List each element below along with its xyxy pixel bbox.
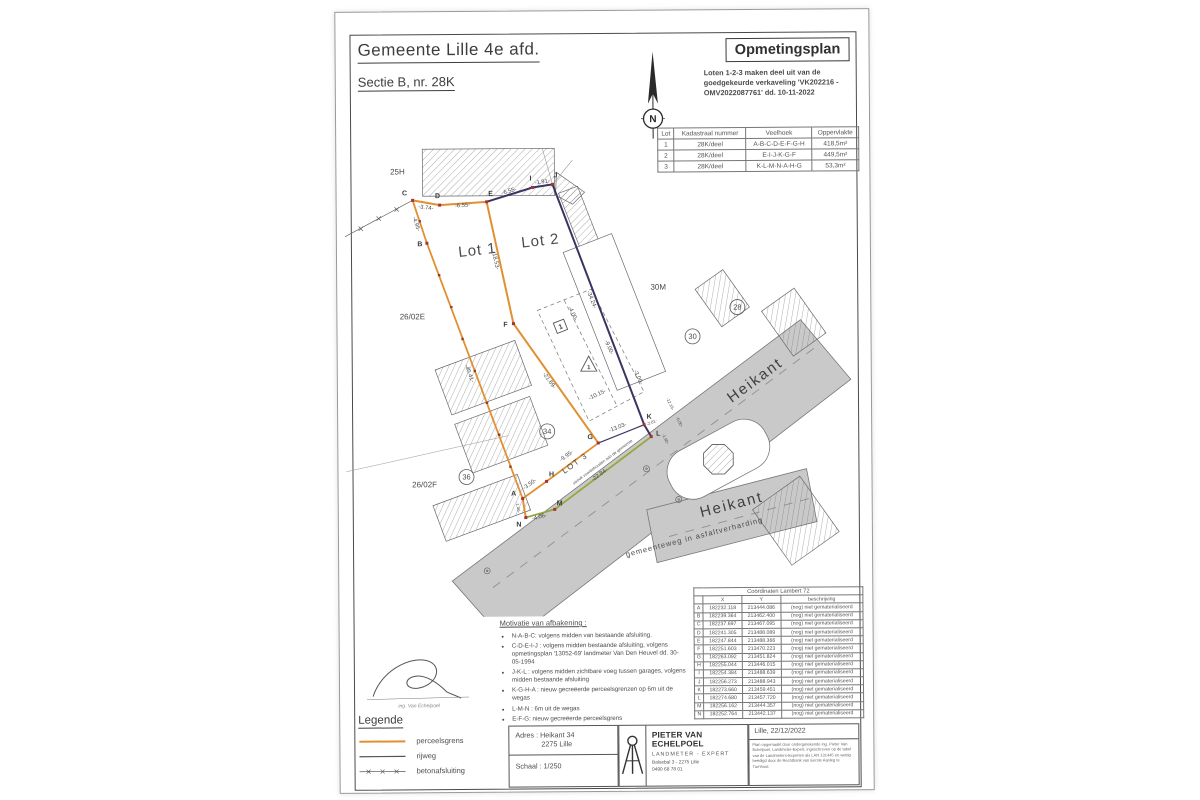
svg-text:-3.74-: -3.74-: [418, 204, 434, 212]
list-item: J-K-L : volgens midden zichtbare voeg tu…: [512, 668, 686, 685]
svg-text:A: A: [511, 491, 516, 498]
circle-36-label: 36: [462, 472, 470, 481]
signature-caption: ing. Van Echelpoel: [398, 703, 440, 709]
table-cell: I: [694, 670, 703, 678]
table-cell: 182237.697: [703, 620, 742, 628]
parcel-26-02f-label: 26/02F: [412, 480, 437, 489]
perceelsgrens-line-icon: [358, 737, 406, 745]
titleblock-date: Lille, 22/12/2022 Plan opgemaakt door on…: [748, 723, 859, 786]
table-cell: 213488.943: [742, 677, 781, 685]
section-subtitle: Sectie B, nr. 28K: [358, 74, 455, 92]
list-item: L-M-N : 6m uit de wegas: [512, 704, 686, 713]
table-cell: J: [694, 678, 703, 686]
table-cell: 182255.044: [704, 661, 743, 669]
table-cell: 213488.639: [742, 669, 781, 677]
table-cell: 213459.451: [742, 686, 781, 694]
plan-note: Loten 1-2-3 maken deel uit van de goedge…: [704, 67, 856, 98]
plan-type-title: Opmetingsplan: [725, 37, 849, 62]
legend-item-betonafsluiting: betonafsluiting: [359, 766, 465, 776]
table-cell: (nog) niet gematerialiseerd: [781, 710, 863, 719]
svg-text:G: G: [588, 434, 594, 441]
table-cell: 213446.015: [742, 661, 781, 669]
titleblock-surveyor: PIETER VAN ECHELPOEL LANDMETER - EXPERT …: [618, 724, 748, 787]
legend: Legende perceelsgrens rijweg betonafslui…: [358, 710, 465, 782]
surveyor-title: LANDMETER - EXPERT: [652, 751, 745, 758]
table-cell: 213457.720: [743, 694, 782, 702]
building-marker-square: 1: [553, 319, 567, 333]
cadastral-drawing: 1 1: [344, 136, 861, 618]
svg-text:-12.16-: -12.16-: [665, 397, 676, 412]
table-cell: 182254.384: [704, 669, 743, 677]
octagon-structure: [704, 444, 734, 474]
coord-col-point: [694, 596, 703, 604]
motivation-title: Motivatie van afbakening :: [500, 617, 686, 627]
svg-text:I: I: [529, 176, 531, 183]
legend-item-rijweg: rijweg: [358, 751, 464, 761]
parcel-25h-label: 25H: [390, 167, 405, 176]
table-cell: 213488.366: [742, 636, 781, 644]
table-cell: 182256.273: [704, 678, 743, 686]
tripod-icon: [620, 734, 646, 778]
motivation-block: Motivatie van afbakening : N-A-B-C: volg…: [500, 617, 687, 725]
table-cell: C: [694, 621, 703, 629]
surveyor-signature: ing. Van Echelpoel: [365, 652, 480, 718]
table-cell: 213470.223: [742, 645, 781, 653]
circle-30-label: 30: [688, 332, 696, 341]
legal-statement: Plan opgemaakt door ondergetekende ing. …: [749, 739, 858, 771]
svg-text:L: L: [656, 431, 661, 438]
table-cell: A: [694, 604, 703, 612]
municipality-title: Gemeente Lille 4e afd.: [357, 39, 539, 63]
table-cell: D: [694, 629, 703, 637]
svg-text:-6.55-: -6.55-: [455, 202, 471, 209]
table-cell: F: [694, 645, 703, 653]
list-item: K-G-H-A : nieuw gecreëerde perceelsgrenz…: [512, 686, 686, 703]
svg-text:M: M: [557, 500, 563, 507]
betonafsluiting-line-icon: [359, 767, 407, 775]
svg-text:-4.00-: -4.00-: [566, 306, 578, 322]
coord-col-x: X: [703, 596, 742, 604]
legend-item-perceelsgrens: perceelsgrens: [358, 736, 464, 746]
building-marker-triangle: 1: [581, 356, 597, 371]
list-item: C-D-E-I-J : volgens midden bestaande afs…: [512, 642, 686, 667]
svg-text:F: F: [503, 322, 508, 329]
surveyor-name: PIETER VAN ECHELPOEL: [652, 730, 745, 749]
table-cell: 182256.162: [704, 702, 743, 710]
motivation-list: N-A-B-C: volgens midden van bestaande af…: [500, 631, 687, 723]
table-cell: 182239.364: [703, 612, 742, 620]
svg-text:N: N: [516, 522, 521, 529]
legend-label-betonafsluiting: betonafsluiting: [417, 766, 465, 775]
scale-value: Schaal : 1/250: [509, 755, 617, 771]
address-cell: Adres : Heikant 34 2275 Lille: [509, 726, 617, 756]
table-cell: H: [694, 662, 703, 670]
table-cell: 213488.089: [742, 628, 781, 636]
coordinates-table: Coördinaten Lambert 72 X Y beschrijving …: [693, 586, 864, 719]
svg-text:-10.15-: -10.15-: [588, 388, 607, 401]
svg-text:B: B: [417, 241, 422, 248]
table-cell: E: [694, 637, 703, 645]
svg-text:E: E: [488, 191, 493, 198]
svg-text:J: J: [553, 172, 557, 179]
parcel-26-02e-label: 26/02E: [400, 312, 425, 321]
surveyor-phone: 0490 68 78 01: [652, 767, 745, 773]
svg-text:D: D: [435, 193, 440, 200]
table-cell: 213444.086: [742, 604, 781, 612]
table-cell: 182247.844: [703, 637, 742, 645]
list-item: N-A-B-C: volgens midden van bestaande af…: [512, 631, 686, 640]
table-cell: K: [694, 686, 703, 694]
table-cell: G: [694, 653, 703, 661]
table-cell: N: [695, 711, 704, 719]
table-cell: 182263.092: [704, 653, 743, 661]
svg-text:C: C: [402, 190, 407, 197]
table-cell: 213451.824: [742, 653, 781, 661]
table-cell: 182232.118: [703, 604, 742, 612]
table-cell: L: [695, 694, 704, 702]
table-cell: 182274.680: [704, 694, 743, 702]
table-cell: 213444.357: [743, 702, 782, 710]
table-cell: 182251.603: [704, 645, 743, 653]
circle-28-label: 28: [733, 303, 741, 312]
north-label: N: [649, 114, 656, 125]
legend-title: Legende: [358, 714, 403, 728]
place-date: Lille, 22/12/2022: [749, 724, 858, 740]
table-cell: B: [694, 612, 703, 620]
titleblock-address: Adres : Heikant 34 2275 Lille Schaal : 1…: [508, 725, 618, 788]
address-line2: 2275 Lille: [515, 739, 617, 749]
svg-text:H: H: [549, 471, 554, 478]
surveyor-address: Balsebal 3 - 2275 Lille: [652, 760, 745, 766]
table-row: N182252.764213442.137(nog) niet gemateri…: [695, 710, 864, 719]
rijweg-line-icon: [358, 752, 406, 760]
table-cell: 182241.305: [703, 628, 742, 636]
parcel-30m-label: 30M: [650, 283, 666, 292]
table-cell: 213462.400: [742, 612, 781, 620]
list-item: E-F-G: nieuw gecreëerde perceelsgrens: [512, 714, 686, 723]
legend-label-rijweg: rijweg: [416, 751, 436, 760]
circle-34-label: 34: [543, 427, 551, 436]
table-cell: 182252.764: [704, 710, 743, 718]
table-cell: M: [695, 702, 704, 710]
table-cell: 213442.137: [743, 710, 782, 718]
lot2-label: Lot 2: [520, 230, 560, 251]
coord-col-y: Y: [742, 595, 781, 603]
table-cell: 182273.660: [704, 686, 743, 694]
legend-label-perceelsgrens: perceelsgrens: [416, 736, 463, 745]
table-cell: 213467.095: [742, 620, 781, 628]
survey-plan-sheet: Gemeente Lille 4e afd. Sectie B, nr. 28K…: [334, 8, 874, 794]
surveyor-logo: [619, 726, 647, 786]
